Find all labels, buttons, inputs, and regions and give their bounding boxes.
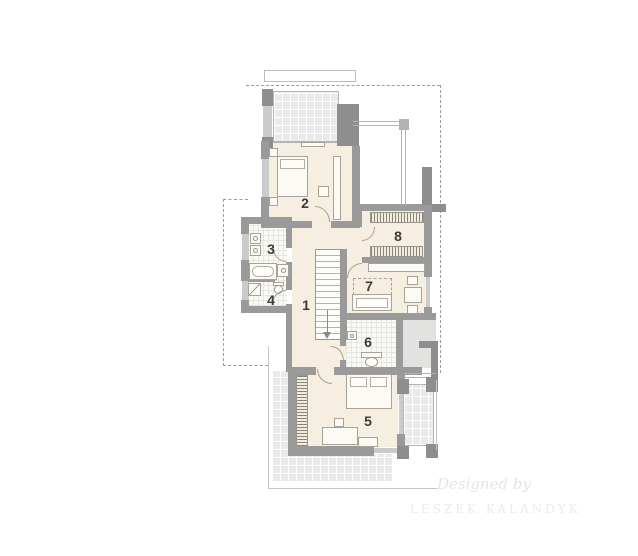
roof-outline-left-lower bbox=[223, 365, 268, 366]
room-label-8: 8 bbox=[394, 229, 402, 243]
window bbox=[263, 106, 272, 137]
pillow bbox=[280, 159, 305, 169]
bathtub-basin bbox=[252, 266, 274, 277]
sink-basin bbox=[253, 236, 258, 241]
wall bbox=[424, 204, 432, 262]
room-label-4: 4 bbox=[267, 293, 275, 307]
room8-closet-shelving-top bbox=[370, 212, 424, 223]
washing-machine bbox=[277, 264, 289, 277]
terrace-tiles-bottom bbox=[272, 454, 393, 482]
void-railing-post bbox=[399, 119, 409, 130]
sink-basin bbox=[253, 248, 258, 253]
wall bbox=[288, 446, 374, 456]
balcony-post bbox=[397, 446, 409, 459]
wall bbox=[340, 320, 346, 346]
balcony-right-edge bbox=[436, 380, 437, 450]
watermark-designed-by: Designed by bbox=[437, 475, 531, 493]
wall bbox=[288, 367, 296, 456]
room-label-1: 1 bbox=[302, 298, 310, 312]
terrace-boundary-left bbox=[268, 346, 269, 489]
wall bbox=[352, 204, 432, 211]
chair bbox=[407, 276, 418, 285]
wall bbox=[422, 167, 432, 205]
wall bbox=[396, 320, 403, 368]
roof-outline-right bbox=[440, 85, 441, 373]
wall bbox=[358, 211, 362, 227]
wall bbox=[432, 204, 446, 212]
wall bbox=[241, 217, 249, 234]
window bbox=[399, 388, 403, 434]
staircase-down-arrow bbox=[323, 332, 331, 339]
room8-closet-shelving-bottom bbox=[370, 246, 423, 257]
chair bbox=[407, 305, 418, 314]
bed bbox=[277, 156, 308, 197]
wall bbox=[346, 313, 436, 320]
wall bbox=[262, 89, 273, 106]
room5-wardrobe bbox=[296, 375, 308, 447]
desk bbox=[322, 427, 358, 445]
staircase bbox=[315, 249, 341, 340]
sink-basin bbox=[350, 334, 354, 338]
window bbox=[426, 277, 430, 307]
window bbox=[262, 159, 269, 197]
wall bbox=[424, 262, 432, 277]
toilet-bowl bbox=[365, 357, 378, 367]
wall bbox=[286, 304, 292, 372]
terrace-boundary-bottom bbox=[268, 488, 438, 489]
roof-outline-left-upper bbox=[223, 199, 248, 200]
pillow bbox=[370, 377, 387, 387]
pillow bbox=[350, 377, 367, 387]
dresser bbox=[358, 437, 378, 447]
roof-outline-top bbox=[246, 85, 440, 86]
stool bbox=[318, 186, 329, 197]
staircase-arrow-stem bbox=[327, 310, 328, 333]
window bbox=[374, 448, 398, 453]
void-railing-horizontal bbox=[353, 121, 405, 126]
room-label-6: 6 bbox=[364, 335, 372, 349]
balcony-post bbox=[397, 379, 409, 394]
washer-door bbox=[281, 268, 286, 273]
roof-outline-left bbox=[223, 199, 224, 366]
table bbox=[404, 287, 422, 303]
sink bbox=[250, 233, 261, 244]
nightstand bbox=[269, 148, 278, 157]
wall bbox=[261, 141, 269, 159]
nightstand bbox=[269, 197, 278, 206]
room-label-5: 5 bbox=[364, 414, 372, 428]
sideboard bbox=[368, 263, 425, 272]
bed bbox=[346, 374, 392, 409]
watermark-author: LESZEK KALANDYK bbox=[410, 502, 581, 516]
bathtub bbox=[249, 263, 277, 280]
sofa-seat bbox=[356, 298, 388, 308]
window bbox=[242, 234, 249, 260]
room-label-2: 2 bbox=[301, 196, 309, 210]
sink bbox=[250, 245, 261, 256]
room-label-7: 7 bbox=[365, 279, 373, 293]
shelf bbox=[301, 142, 325, 147]
room-label-3: 3 bbox=[267, 242, 275, 256]
void-railing-vertical bbox=[401, 130, 406, 206]
wardrobe-cabinet bbox=[333, 156, 341, 220]
balcony-top-tiles bbox=[273, 91, 339, 143]
sofa bbox=[352, 294, 392, 311]
pergola-roof-edge bbox=[264, 70, 356, 82]
wall bbox=[331, 221, 360, 228]
floor-plan-canvas: 1 2 3 4 5 6 7 8 Designed by LESZEK KALAN… bbox=[0, 0, 638, 556]
sink bbox=[347, 331, 357, 340]
shower bbox=[248, 283, 261, 296]
wall bbox=[286, 224, 292, 248]
stool bbox=[334, 418, 344, 427]
